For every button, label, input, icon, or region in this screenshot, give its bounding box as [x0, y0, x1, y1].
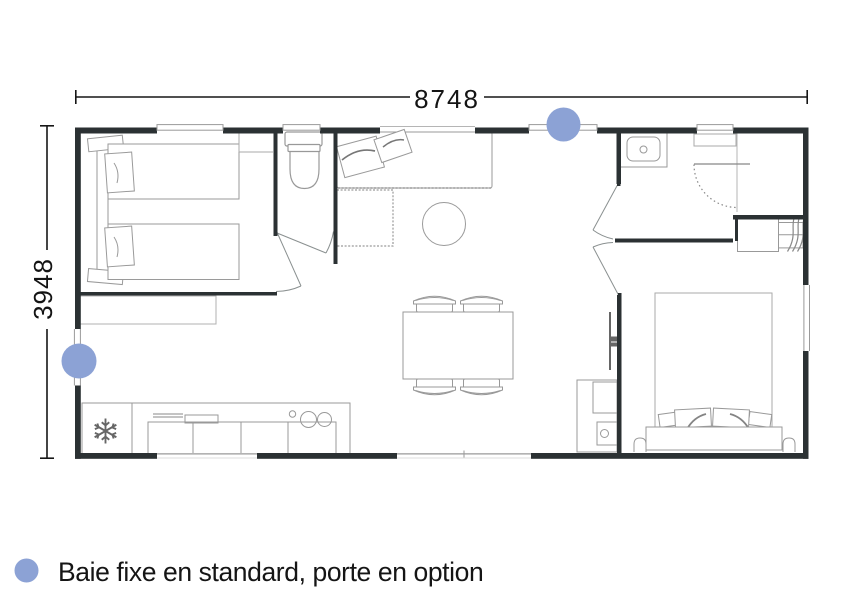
- svg-text:3948: 3948: [28, 258, 58, 320]
- svg-text:Baie fixe en standard, porte e: Baie fixe en standard, porte en option: [58, 557, 483, 587]
- svg-text:8748: 8748: [414, 84, 480, 114]
